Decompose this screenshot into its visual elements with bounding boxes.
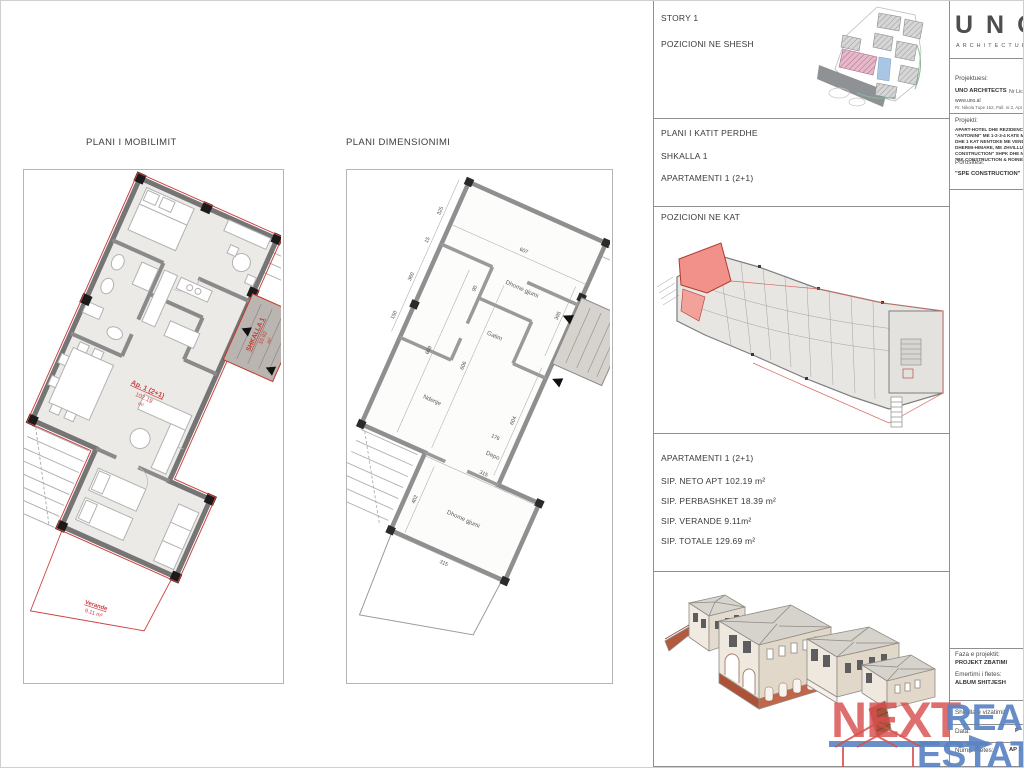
sheet-name-value: ALBUM SHITJESH xyxy=(955,680,1023,686)
divider xyxy=(949,700,1024,701)
divider xyxy=(653,206,949,207)
client-label: Porositesi: xyxy=(955,159,1023,166)
client-name: "SPE CONSTRUCTION" xyxy=(955,171,1023,177)
sheet-number-label: Numri i fletes: xyxy=(955,747,1003,754)
project-label: Projekti: xyxy=(955,117,1023,124)
floor-title: PLANI I KATIT PERDHE xyxy=(661,128,758,138)
dimension-plan-drawing: 607 395 325 15 360 150 90 609 606 604 17… xyxy=(347,170,610,681)
date-label: Data: xyxy=(955,728,1003,735)
divider xyxy=(653,1,654,767)
divider xyxy=(949,648,1024,649)
project-line: CONSTRUCTION" SHPK DHE NDER xyxy=(955,151,1023,157)
area-row-neto: SIP. NETO APT 102.19 m² xyxy=(661,476,765,486)
phase-value: PROJEKT ZBATIMI xyxy=(955,660,1023,666)
phase-label: Faza e projektit: xyxy=(955,651,1023,658)
pool xyxy=(877,57,891,81)
uno-logo: UNO xyxy=(955,11,1024,40)
divider xyxy=(949,189,1024,190)
right-plan-title: PLANI DIMENSIONIMI xyxy=(346,137,450,148)
architect-name: UNO ARCHITECTS xyxy=(955,88,1007,94)
entry-arrow xyxy=(550,374,563,387)
ramp-hatch xyxy=(657,277,679,305)
area-table-title: APARTAMENTI 1 (2+1) xyxy=(661,453,753,463)
floor-overview-drawing xyxy=(657,227,945,429)
project-line: DHERMI-HIMARE, ME ZHVILLUES xyxy=(955,145,1023,151)
furniture-plan-drawing: SHKALLA 1 10.92 m² Ap. 1 (2+1) 102.19 m²… xyxy=(24,170,281,681)
apartment-title: APARTAMENTI 1 (2+1) xyxy=(661,173,753,183)
divider xyxy=(653,571,949,572)
dim: 15 xyxy=(424,236,432,244)
building-3d-render xyxy=(659,577,944,767)
left-plan-title: PLANI I MOBILIMIT xyxy=(86,137,177,148)
scale-label: Shkalla e vizatimit: xyxy=(955,709,1023,716)
divider xyxy=(949,742,1024,743)
dim: 150 xyxy=(390,310,399,320)
dim: 360 xyxy=(407,272,416,282)
sheet-number-value: AP 1 xyxy=(1009,747,1024,753)
site-plan-map xyxy=(817,5,935,115)
divider xyxy=(949,113,1024,114)
architect-label: Projektuesi: xyxy=(955,75,1023,82)
divider xyxy=(949,1,950,767)
divider xyxy=(949,724,1024,725)
dim: 325 xyxy=(436,206,445,216)
divider xyxy=(653,433,949,434)
exterior-ladder xyxy=(891,397,902,427)
date-value: P xyxy=(1015,728,1024,734)
divider xyxy=(949,58,1024,59)
story-title: STORY 1 xyxy=(661,13,698,23)
architect-address: Rr. Nikola Tupe 152, Pall. nr.2, Apt 1 xyxy=(955,105,1023,110)
story-subtitle: POZICIONI NE SHESH xyxy=(661,39,754,49)
area-row-totale: SIP. TOTALE 129.69 m² xyxy=(661,536,755,546)
staircase-title: SHKALLA 1 xyxy=(661,151,708,161)
sheet-name-label: Emertimi i fletes: xyxy=(955,671,1023,678)
floor-position-title: POZICIONI NE KAT xyxy=(661,212,740,222)
area-row-perbashket: SIP. PERBASHKET 18.39 m² xyxy=(661,496,776,506)
project-description: APART-HOTEL DHE REZIDENCE "ANTONINI" ME … xyxy=(955,127,1023,163)
divider xyxy=(653,118,949,119)
uno-logo-subtitle: ARCHITECTURE xyxy=(956,43,1024,49)
drawing-sheet: PLANI I MOBILIMIT xyxy=(0,0,1024,768)
architect-website: www.uno.al xyxy=(955,98,1023,104)
license-number: Nr Lic xyxy=(1009,89,1024,95)
apartment-footprint xyxy=(347,182,610,581)
area-row-verande: SIP. VERANDE 9.11m² xyxy=(661,516,751,526)
